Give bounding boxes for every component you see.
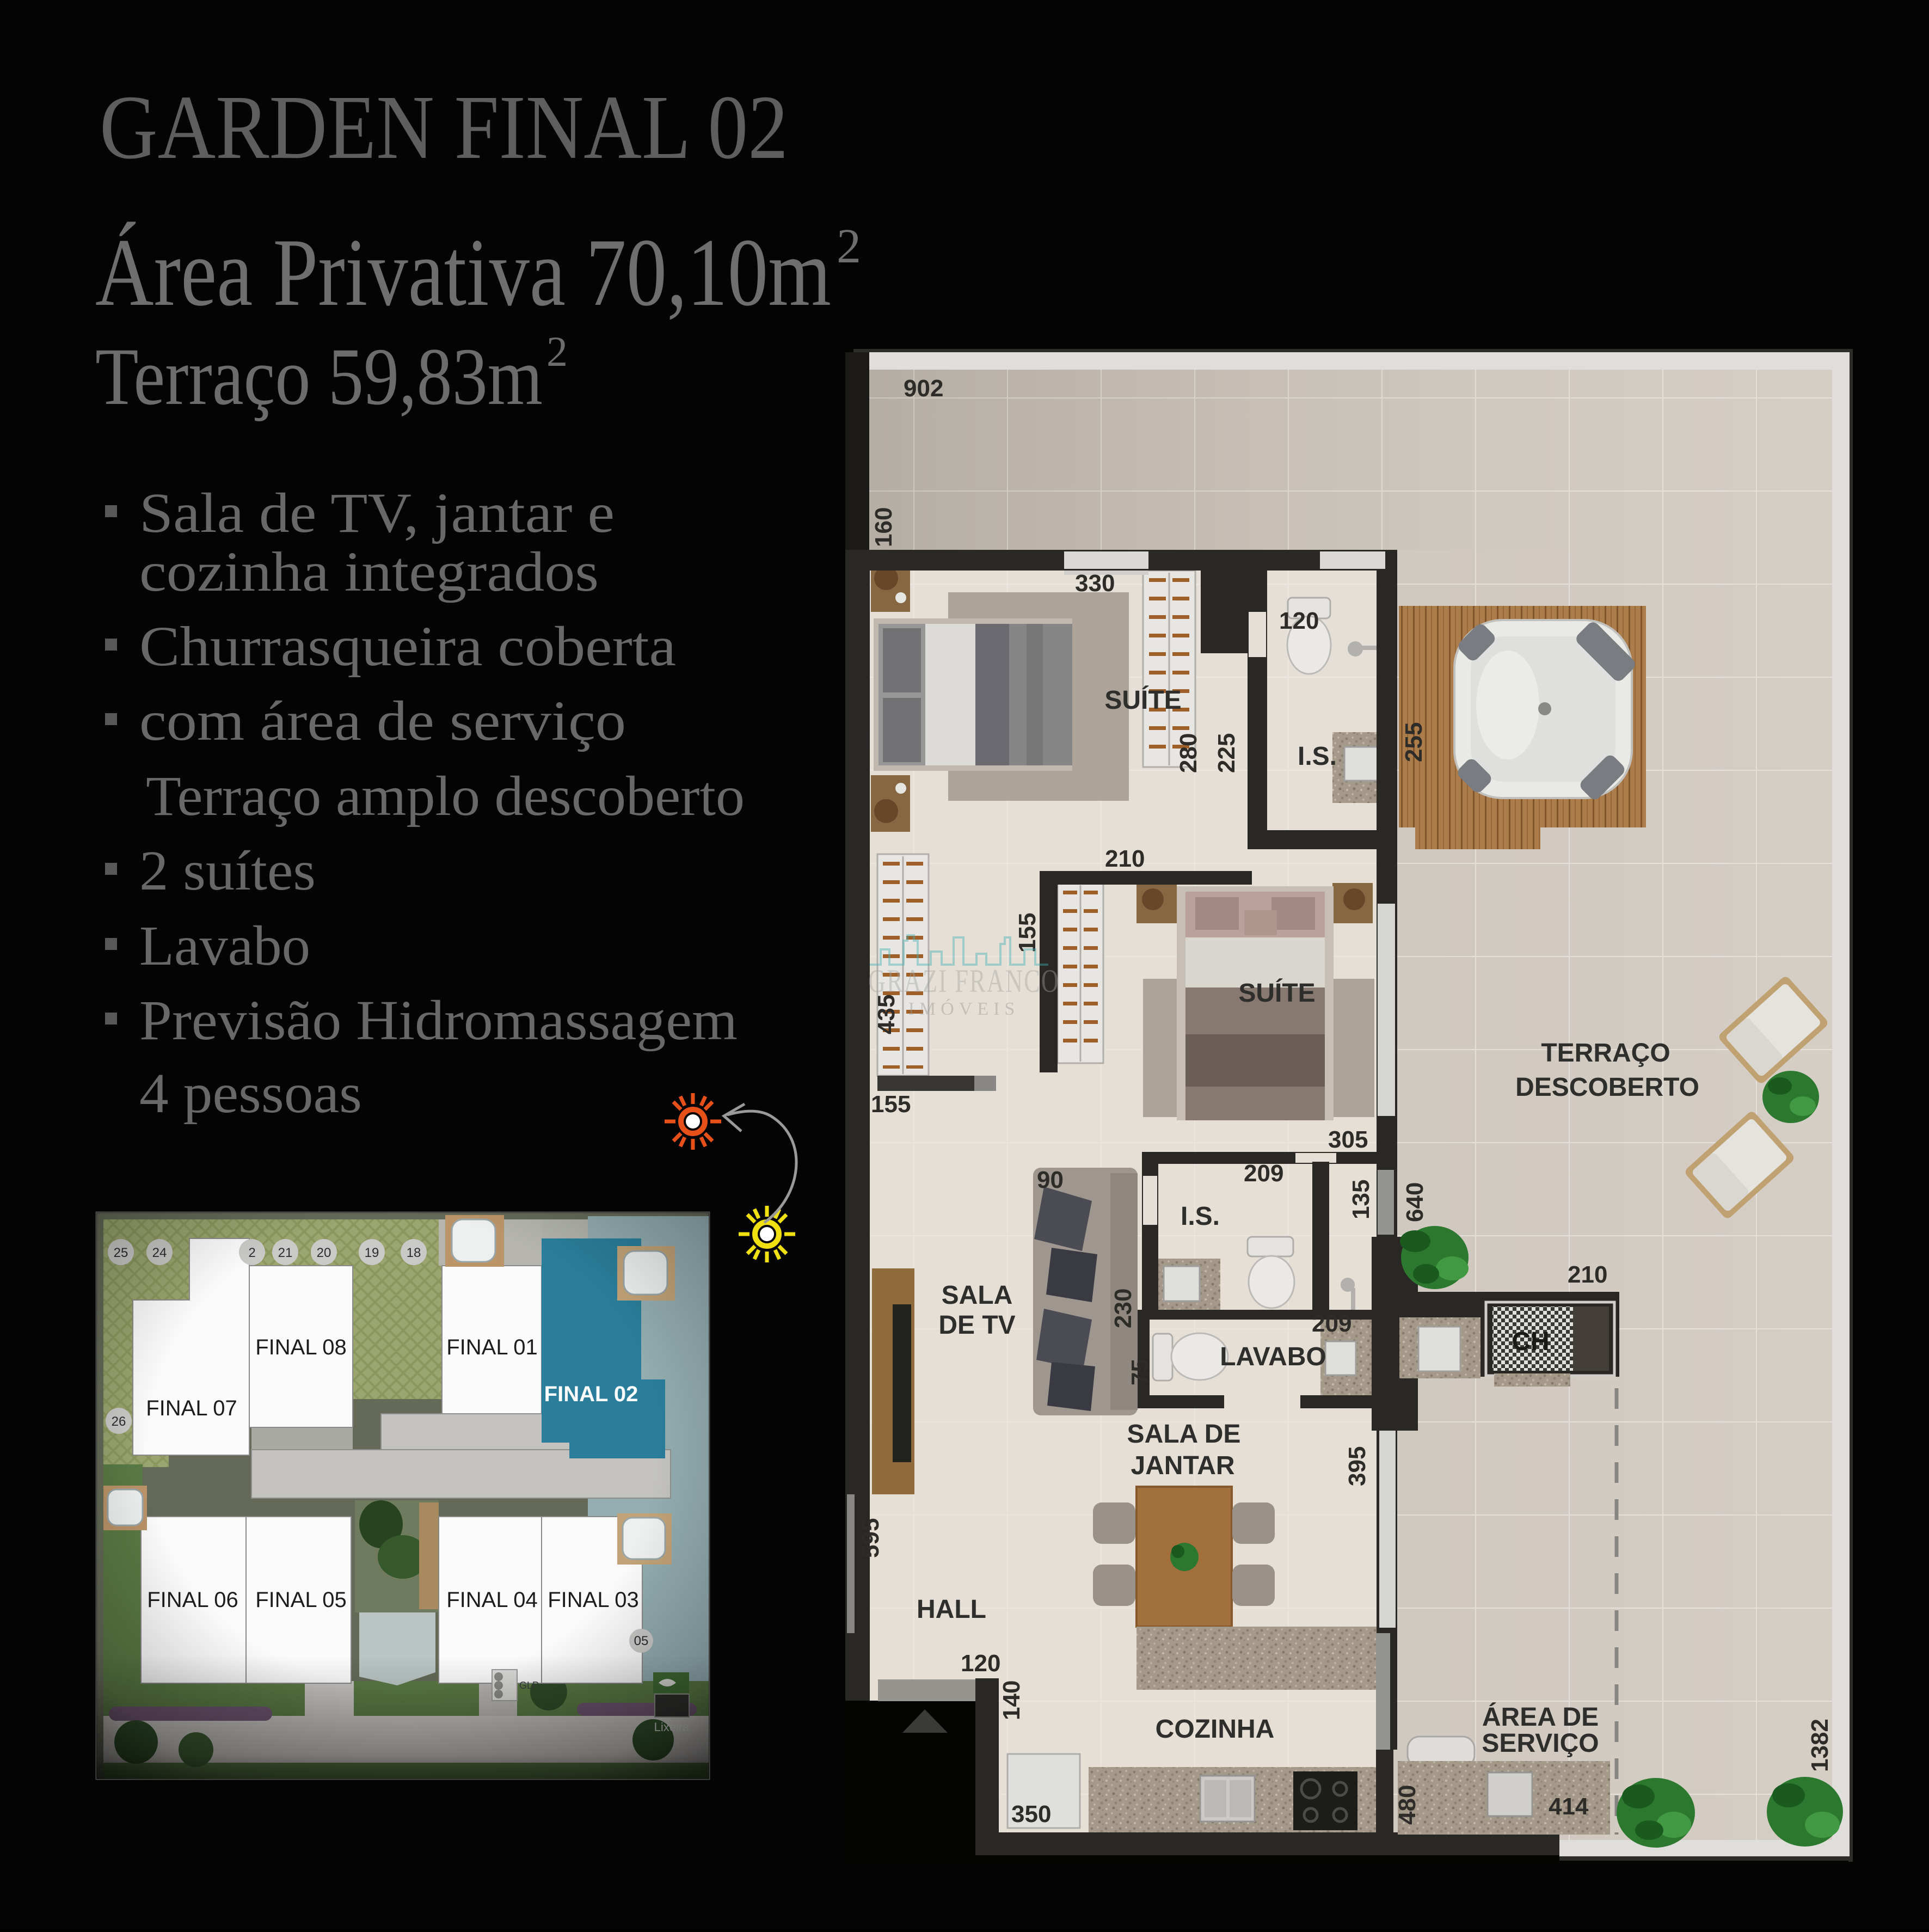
svg-text:Terraço amplo descoberto: Terraço amplo descoberto bbox=[146, 765, 745, 827]
svg-text:Churrasqueira coberta: Churrasqueira coberta bbox=[139, 615, 676, 678]
svg-text:cozinha integrados: cozinha integrados bbox=[139, 541, 599, 603]
svg-text:Área Privativa 70,10m: Área Privativa 70,10m bbox=[95, 218, 831, 326]
svg-text:com área de serviço: com área de serviço bbox=[139, 690, 626, 752]
svg-text:4 pessoas: 4 pessoas bbox=[139, 1062, 362, 1125]
svg-text:Previsão Hidromassagem: Previsão Hidromassagem bbox=[139, 989, 738, 1052]
svg-text:Sala de TV, jantar e: Sala de TV, jantar e bbox=[139, 482, 615, 544]
svg-text:2: 2 bbox=[546, 328, 568, 375]
svg-text:GARDEN FINAL 02: GARDEN FINAL 02 bbox=[100, 77, 788, 178]
svg-text:2 suítes: 2 suítes bbox=[139, 839, 316, 902]
svg-text:Terraço 59,83m: Terraço 59,83m bbox=[95, 332, 543, 422]
svg-text:Lavabo: Lavabo bbox=[139, 915, 310, 977]
svg-text:2: 2 bbox=[837, 219, 861, 273]
